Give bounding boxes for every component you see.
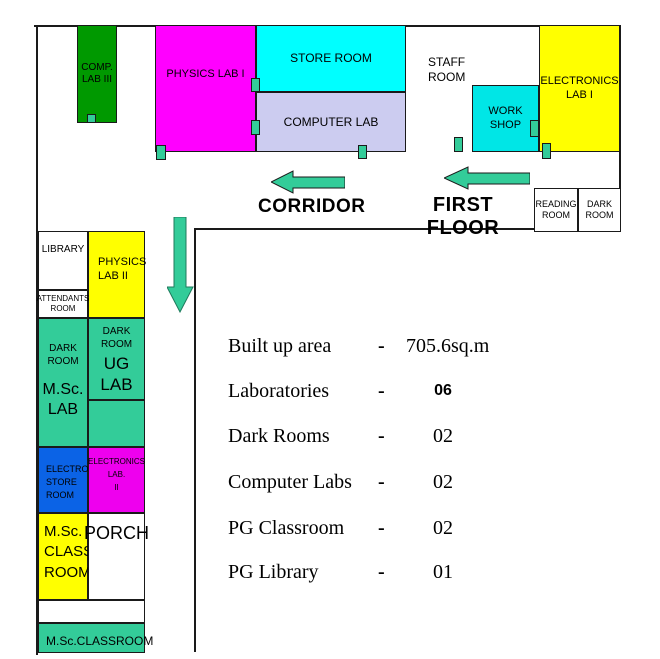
stat-value: 02 — [406, 517, 480, 540]
room-attendants-room: ATTENDANTS ROOM — [38, 290, 88, 318]
door-marker — [87, 114, 96, 123]
room-reading-room: READING ROOM — [534, 188, 578, 232]
first-floor-left-arrow-icon — [444, 166, 530, 191]
stats-row-built-up-area: Built up area - 705.6sq.m — [228, 333, 480, 359]
stat-label: Built up area — [228, 335, 378, 358]
stat-value: 06 — [406, 382, 480, 400]
stat-separator: - — [378, 425, 406, 448]
door-marker — [251, 78, 260, 92]
room-label: COMPUTER LAB — [284, 115, 379, 130]
room-library: LIBRARY — [38, 231, 88, 290]
room-label: COMP. LAB III — [81, 62, 113, 87]
room-label: READING ROOM — [535, 199, 576, 222]
room-label: LIBRARY — [42, 244, 85, 257]
corridor-label: CORRIDOR — [258, 196, 363, 218]
down-arrow-icon — [167, 217, 194, 313]
room-label: UG LAB — [100, 353, 132, 396]
door-marker — [454, 137, 463, 152]
wall-inner-vertical — [194, 228, 196, 652]
room-electronics-lab-2: ELECTRONICS LAB. II — [88, 447, 145, 513]
stat-separator: - — [378, 561, 406, 584]
door-marker — [542, 143, 551, 159]
stat-separator: - — [378, 517, 406, 540]
room-gap-strip — [38, 600, 145, 623]
stats-row-laboratories: Laboratories - 06 — [228, 378, 480, 404]
room-unlabeled-teal — [88, 400, 145, 447]
floor-plan-canvas: COMP. LAB III PHYSICS LAB I STORE ROOM C… — [0, 0, 660, 659]
room-label: PORCH — [84, 522, 149, 545]
door-marker — [251, 120, 260, 135]
room-work-shop: WORK SHOP — [472, 85, 539, 152]
stat-label: PG Classroom — [228, 517, 378, 540]
room-label: ELECTRONICS LAB. II — [88, 456, 145, 494]
room-label: PHYSICS LAB I — [166, 68, 244, 82]
stat-label: Computer Labs — [228, 471, 378, 494]
room-label: STORE ROOM — [290, 51, 372, 66]
first-floor-label: FIRST FLOOR — [403, 194, 523, 240]
stat-separator: - — [378, 471, 406, 494]
room-label: ATTENDANTS ROOM — [37, 294, 90, 314]
room-comp-lab-3: COMP. LAB III — [77, 25, 117, 123]
room-msc-lab-dark-room: DARK ROOM M.Sc. LAB — [38, 318, 88, 447]
stats-row-dark-rooms: Dark Rooms - 02 — [228, 423, 480, 449]
room-store-room: STORE ROOM — [256, 25, 406, 92]
room-label: ELECTRONICS LAB I — [540, 75, 618, 103]
door-marker — [156, 145, 166, 160]
stat-separator: - — [378, 335, 406, 358]
stat-label: PG Library — [228, 561, 378, 584]
room-label: DARK ROOM — [101, 326, 132, 351]
room-physics-lab-1: PHYSICS LAB I — [155, 25, 256, 152]
room-label: PHYSICS LAB II — [98, 256, 146, 284]
room-physics-lab-2: PHYSICS LAB II — [88, 231, 145, 318]
stats-row-pg-classroom: PG Classroom - 02 — [228, 515, 480, 541]
room-label: ELECTRO. STORE ROOM — [46, 463, 91, 502]
room-label: M.Sc. LAB — [43, 380, 84, 420]
stat-label: Dark Rooms — [228, 425, 378, 448]
room-label: DARK ROOM — [586, 199, 614, 222]
room-msc-classroom-strip: M.Sc.CLASSROOM — [38, 623, 145, 653]
room-label: WORK SHOP — [488, 105, 522, 133]
room-porch: PORCH — [88, 513, 145, 600]
room-electronics-lab-1: ELECTRONICS LAB I — [539, 25, 620, 152]
room-label: DARK ROOM — [47, 343, 78, 368]
room-electro-store-room: ELECTRO. STORE ROOM — [38, 447, 88, 513]
stat-label: Laboratories — [228, 380, 378, 403]
room-label: M.Sc.CLASSROOM — [46, 634, 153, 649]
stat-separator: - — [378, 380, 406, 403]
stat-value: 01 — [406, 561, 480, 584]
door-marker — [358, 145, 367, 159]
room-label: STAFF ROOM — [428, 55, 465, 85]
stats-row-pg-library: PG Library - 01 — [228, 559, 480, 585]
room-computer-lab: COMPUTER LAB — [256, 92, 406, 152]
stat-value: 02 — [406, 471, 480, 494]
stat-value: 02 — [406, 425, 480, 448]
stat-value: 705.6sq.m — [406, 335, 480, 358]
room-msc-class-room: M.Sc. CLASS ROOM — [38, 513, 88, 600]
room-dark-room-first-floor: DARK ROOM — [578, 188, 621, 232]
door-marker — [530, 120, 539, 137]
stats-row-computer-labs: Computer Labs - 02 — [228, 469, 480, 495]
corridor-left-arrow-icon — [271, 169, 345, 195]
room-ug-lab-dark-room: DARK ROOM UG LAB — [88, 318, 145, 400]
